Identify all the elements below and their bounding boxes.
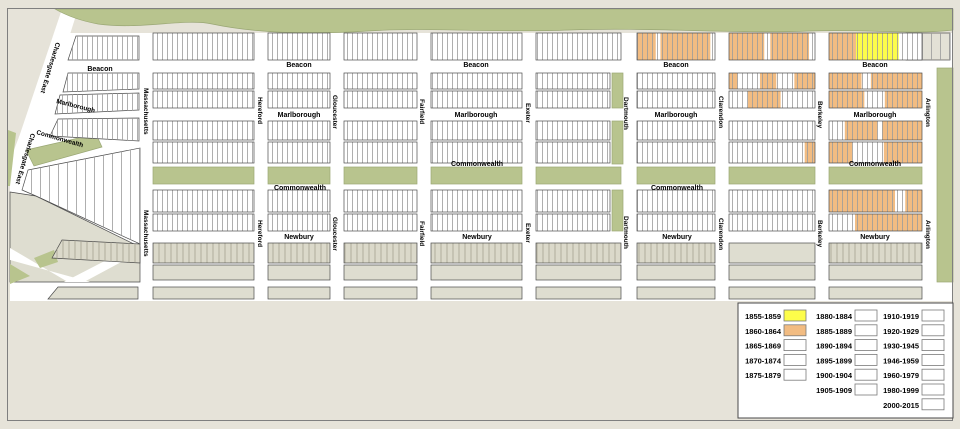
city-block-r2-c4 xyxy=(431,91,522,108)
city-block-r3-c8 xyxy=(829,121,922,140)
street-label: Beacon xyxy=(286,62,311,69)
street-label: Arlington xyxy=(924,220,931,249)
legend-item-label: 1890-1894 xyxy=(816,342,853,351)
dartmouth-green-strip xyxy=(612,73,623,108)
legend-swatch-1885-1889 xyxy=(855,325,877,336)
city-block-r8-c7 xyxy=(729,265,815,280)
legend-item-label: 1960-1979 xyxy=(883,371,919,380)
legend-swatch-2000-2015 xyxy=(922,399,944,410)
city-block-r9-c3 xyxy=(344,287,417,299)
street-label: Marlborough xyxy=(455,112,498,119)
commonwealth-mall xyxy=(829,167,922,184)
legend-swatch-1890-1894 xyxy=(855,340,877,351)
city-block-r9-c1 xyxy=(153,287,254,299)
street-label: Gloucester xyxy=(331,217,338,251)
city-block-r4-c3 xyxy=(344,142,417,163)
gray-block xyxy=(48,287,138,299)
legend-swatch-1895-1899 xyxy=(855,354,877,365)
city-block-r6-c1 xyxy=(153,214,254,231)
legend-item-label: 1885-1889 xyxy=(816,327,852,336)
city-block-r5-c5 xyxy=(536,190,610,212)
street-label: Commonwealth xyxy=(274,185,326,192)
street-label: Massachusetts xyxy=(142,210,149,257)
legend-swatch-1905-1909 xyxy=(855,384,877,395)
city-block-r6-c5 xyxy=(536,214,610,231)
street-label: Exeter xyxy=(524,103,531,123)
city-block-r8-c5 xyxy=(536,265,621,280)
city-block-r7-c6 xyxy=(637,243,715,263)
street-label: Commonwealth xyxy=(849,161,901,168)
commonwealth-mall xyxy=(431,167,522,184)
city-block-r4-c2 xyxy=(268,142,330,163)
screenshot-root: { "title": "Back Bay building constructi… xyxy=(0,0,960,429)
city-block-r0-c2 xyxy=(268,33,330,60)
city-block-r3-c6 xyxy=(637,121,715,140)
street-label: Berkeley xyxy=(816,101,823,128)
street-label: Beacon xyxy=(87,66,112,73)
city-block-r2-c5 xyxy=(536,91,610,108)
city-block-r9-c6 xyxy=(637,287,715,299)
street-label: Exeter xyxy=(524,223,531,243)
city-block-r0-c4 xyxy=(431,33,522,60)
city-block-r2-c2 xyxy=(268,91,330,108)
city-block-r5-c4 xyxy=(431,190,522,212)
city-block-r4-c5 xyxy=(536,142,610,163)
legend-item-label: 1895-1899 xyxy=(816,356,852,365)
street-label: Commonwealth xyxy=(451,161,503,168)
street-label: Hereford xyxy=(256,97,263,124)
legend: 1855-18591860-18641865-18691870-18741875… xyxy=(738,303,953,418)
map-stage: BeaconBeaconBeaconBeaconBeaconMarlboroug… xyxy=(0,0,960,429)
city-block-r6-c6 xyxy=(637,214,715,231)
parcel-block xyxy=(68,36,139,60)
city-block-r2-c1 xyxy=(153,91,254,108)
city-block-r3-c4 xyxy=(431,121,522,140)
city-block-r5-c7 xyxy=(729,190,815,212)
city-block-r9-c7 xyxy=(729,287,815,299)
city-block-r8-c3 xyxy=(344,265,417,280)
city-block-r0-c6 xyxy=(637,33,715,60)
city-block-r6-c2 xyxy=(268,214,330,231)
city-block-r1-c2 xyxy=(268,73,330,89)
street-label: Beacon xyxy=(463,62,488,69)
legend-item-label: 2000-2015 xyxy=(883,401,919,410)
dartmouth-green-strip xyxy=(612,121,623,164)
public-garden-strip xyxy=(937,68,953,282)
city-block-r2-c7 xyxy=(729,91,815,108)
city-block-r3-c3 xyxy=(344,121,417,140)
street-label: Massachusetts xyxy=(142,88,149,135)
city-block-r7-c4 xyxy=(431,243,522,263)
city-block-r9-c5 xyxy=(536,287,621,299)
legend-item-label: 1946-1959 xyxy=(883,356,919,365)
city-block-r6-c4 xyxy=(431,214,522,231)
city-block-r1-c8 xyxy=(829,73,922,89)
city-block-r5-c2 xyxy=(268,190,330,212)
street-label: Arlington xyxy=(924,98,931,127)
legend-item-label: 1980-1999 xyxy=(883,386,919,395)
city-block-r1-c7 xyxy=(729,73,815,89)
street-label: Gloucester xyxy=(331,95,338,129)
city-block-r4-c4 xyxy=(431,142,522,163)
city-block-r5-c6 xyxy=(637,190,715,212)
legend-item-label: 1875-1879 xyxy=(745,371,781,380)
legend-swatch-1910-1919 xyxy=(922,310,944,321)
city-block-r1-c5 xyxy=(536,73,610,89)
legend-item-label: 1900-1904 xyxy=(816,371,853,380)
legend-swatch-1946-1959 xyxy=(922,354,944,365)
city-block-r1-c6 xyxy=(637,73,715,89)
city-block-r7-c1 xyxy=(153,243,254,263)
legend-item-label: 1855-1859 xyxy=(745,312,781,321)
city-block-r8-c6 xyxy=(637,265,715,280)
city-block-r5-c1 xyxy=(153,190,254,212)
legend-item-label: 1920-1929 xyxy=(883,327,919,336)
city-block-r3-c2 xyxy=(268,121,330,140)
street-label: Dartmouth xyxy=(622,216,629,249)
city-block-r9-c4 xyxy=(431,287,522,299)
city-block-r4-c8 xyxy=(829,142,922,163)
street-label: Newbury xyxy=(860,234,890,241)
city-block-r1-c4 xyxy=(431,73,522,89)
commonwealth-mall xyxy=(344,167,417,184)
legend-item-label: 1910-1919 xyxy=(883,312,919,321)
street-label: Marlborough xyxy=(854,112,897,119)
legend-swatch-1920-1929 xyxy=(922,325,944,336)
city-block-r8-c2 xyxy=(268,265,330,280)
dartmouth-green-strip xyxy=(612,190,623,231)
city-block-r3-c1 xyxy=(153,121,254,140)
city-block-r2-c6 xyxy=(637,91,715,108)
legend-swatch-1870-1874 xyxy=(784,354,806,365)
city-block-r7-c2 xyxy=(268,243,330,263)
street-label: Marlborough xyxy=(655,112,698,119)
legend-swatch-1880-1884 xyxy=(855,310,877,321)
city-block-r2-c3 xyxy=(344,91,417,108)
legend-item-label: 1930-1945 xyxy=(883,342,919,351)
street-label: Commonwealth xyxy=(651,185,703,192)
city-block-r1-c3 xyxy=(344,73,417,89)
street-label: Hereford xyxy=(256,220,263,247)
street-label: Fairfield xyxy=(418,221,425,246)
legend-swatch-1855-1859 xyxy=(784,310,806,321)
legend-swatch-1875-1879 xyxy=(784,369,806,380)
city-block-r8-c4 xyxy=(431,265,522,280)
city-block-r7-c8 xyxy=(829,243,922,263)
city-block-r0-c1 xyxy=(153,33,254,60)
city-block-r4-c6 xyxy=(637,142,715,163)
street-label: Beacon xyxy=(663,62,688,69)
legend-swatch-1860-1864 xyxy=(784,325,806,336)
legend-item-label: 1905-1909 xyxy=(816,386,852,395)
legend-item-label: 1880-1884 xyxy=(816,312,853,321)
city-block-r0-c7 xyxy=(729,33,815,60)
street-label: Marlborough xyxy=(278,112,321,119)
city-block-r7-c3 xyxy=(344,243,417,263)
city-block-r6-c8 xyxy=(829,214,922,231)
city-block-r6-c3 xyxy=(344,214,417,231)
legend-item-label: 1860-1864 xyxy=(745,327,782,336)
city-block-r9-c8 xyxy=(829,287,922,299)
street-label: Clarendon xyxy=(717,218,724,250)
commonwealth-mall xyxy=(637,167,715,184)
legend-swatch-1900-1904 xyxy=(855,369,877,380)
city-block-r4-c1 xyxy=(153,142,254,163)
street-label: Newbury xyxy=(662,234,692,241)
street-label: Newbury xyxy=(284,234,314,241)
city-block-r0-c8 xyxy=(829,33,922,60)
backbay-era-map: BeaconBeaconBeaconBeaconBeaconMarlboroug… xyxy=(0,0,960,429)
city-block-r3-c5 xyxy=(536,121,610,140)
city-block-r5-c3 xyxy=(344,190,417,212)
street-label: Newbury xyxy=(462,234,492,241)
city-block-r8-c1 xyxy=(153,265,254,280)
legend-swatch-1960-1979 xyxy=(922,369,944,380)
city-block-r7-c5 xyxy=(536,243,621,263)
parcel-block xyxy=(63,73,139,92)
street-label: Berkeley xyxy=(816,220,823,247)
legend-swatch-1980-1999 xyxy=(922,384,944,395)
commonwealth-mall xyxy=(153,167,254,184)
city-block-r2-c8 xyxy=(829,91,922,108)
city-block-r4-c7 xyxy=(729,142,815,163)
commonwealth-mall xyxy=(268,167,330,184)
legend-item-label: 1870-1874 xyxy=(745,356,782,365)
street-label: Fairfield xyxy=(418,99,425,124)
city-block-r0-c5 xyxy=(536,33,621,60)
legend-swatch-1930-1945 xyxy=(922,340,944,351)
city-block-r7-c7 xyxy=(729,243,815,263)
legend-item-label: 1865-1869 xyxy=(745,342,781,351)
legend-swatch-1865-1869 xyxy=(784,340,806,351)
city-block-r9-c2 xyxy=(268,287,330,299)
street-label: Clarendon xyxy=(717,96,724,128)
city-block-r0-c3 xyxy=(344,33,417,60)
street-label: Dartmouth xyxy=(622,97,629,130)
city-block-r1-c1 xyxy=(153,73,254,89)
commonwealth-mall xyxy=(729,167,815,184)
street-label: Beacon xyxy=(862,62,887,69)
city-block-r6-c7 xyxy=(729,214,815,231)
city-block-r3-c7 xyxy=(729,121,815,140)
city-block-r8-c8 xyxy=(829,265,922,280)
commonwealth-mall xyxy=(536,167,621,184)
city-block-r5-c8 xyxy=(829,190,922,212)
